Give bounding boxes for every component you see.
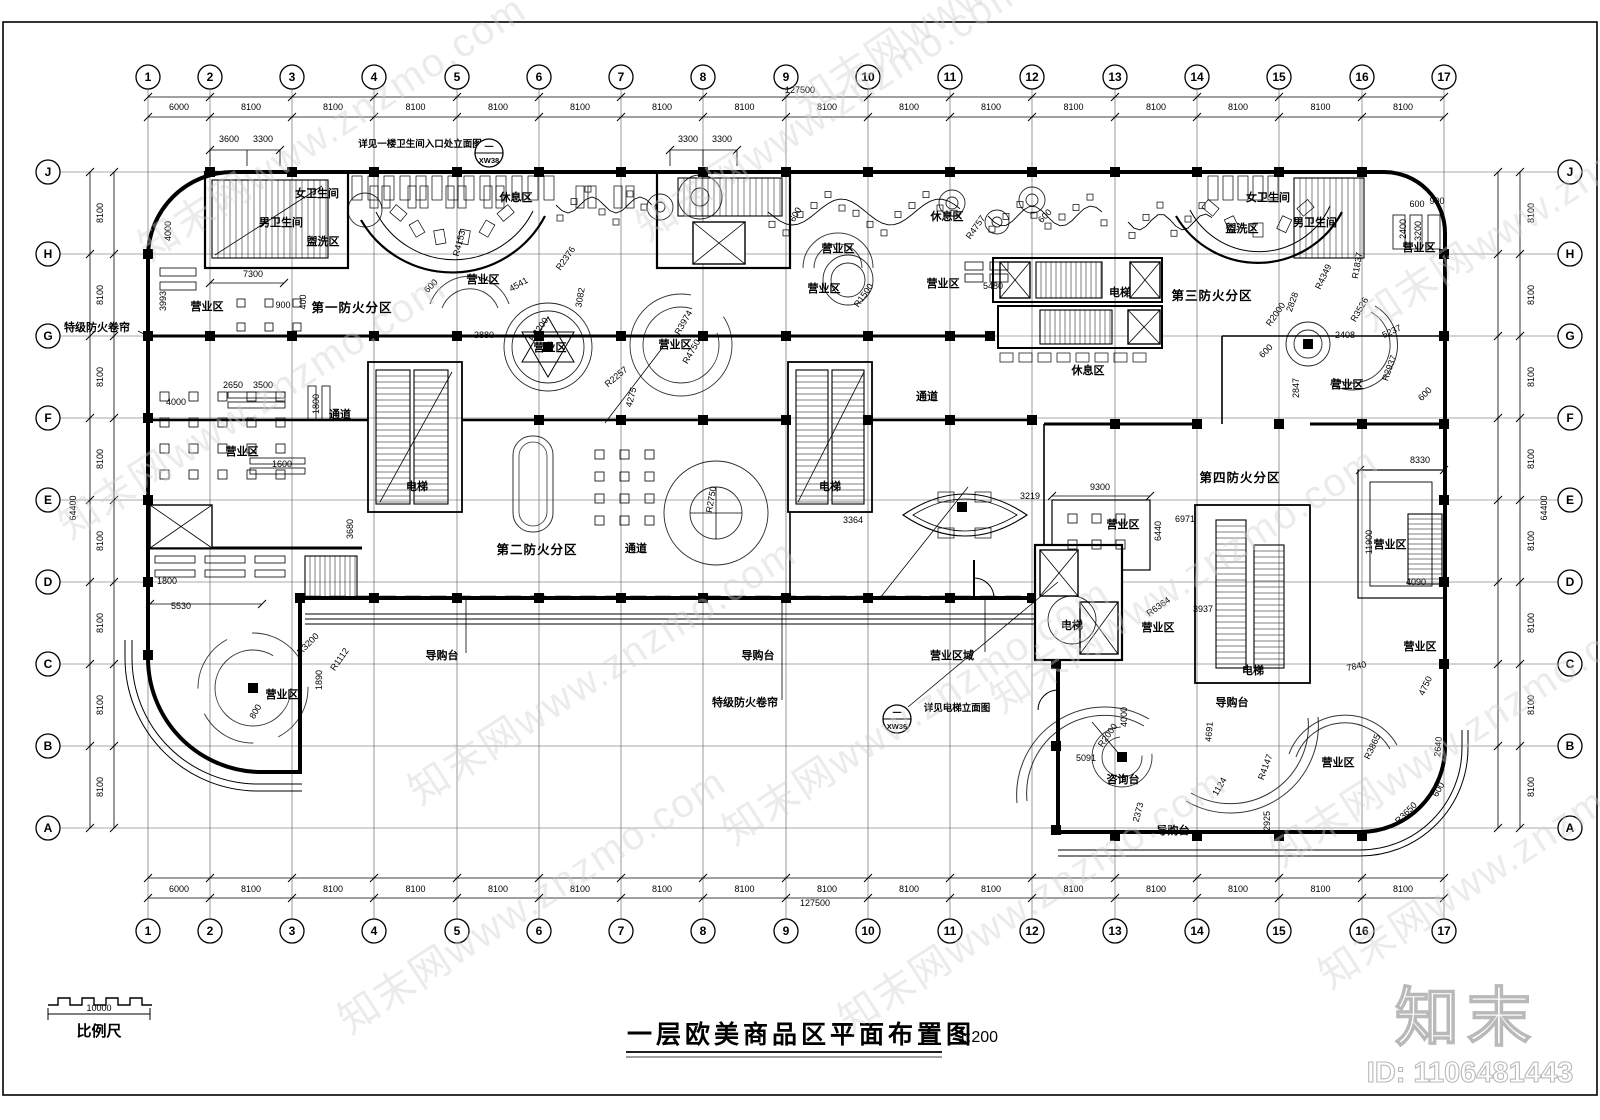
dimension-text: 8100 [1393,102,1413,112]
plan-label: 营业区 [1374,537,1407,551]
grid-bubble: 16 [1355,70,1369,84]
dimension-text: R4349 [1313,263,1333,291]
bench [1038,353,1051,362]
dimension-text: R3974 [672,309,694,337]
plan-label: 电梯 [1242,663,1264,677]
plan-label: 电梯 [819,479,841,493]
plan-label: 营业区 [1322,755,1355,769]
dimension-text: 3300 [712,134,732,144]
dimension-text: 8100 [734,102,754,112]
dimension-text: 4000 [166,397,186,407]
grid-bubble: C [44,657,53,671]
plan-label: 休息区 [499,190,533,204]
plan-label: 导购台 [1216,695,1249,709]
display-table [620,494,629,503]
column [1357,831,1367,841]
grid-bubble: E [1566,493,1574,507]
column [863,331,873,341]
column [863,593,873,603]
dimension-text: 2828 [1284,291,1300,313]
grid-bubble: B [44,739,53,753]
svg-text:一: 一 [484,142,493,152]
dimension-text: 8100 [1146,102,1166,112]
grid-bubble: G [1565,329,1574,343]
dimension-text: R1112 [328,646,351,672]
dimension-text: 8100 [1526,449,1536,469]
dimension-text: 5530 [171,601,191,611]
plan-label: 导购台 [426,648,459,662]
column [616,593,626,603]
column [143,413,153,423]
dimension-text: 3993 [158,291,168,311]
display-table [247,470,256,479]
dimension-text: 2847 [1291,378,1301,398]
grid-bubble: D [44,575,53,589]
dimension-text: 8100 [734,884,754,894]
grid-bubble: 12 [1025,70,1039,84]
grid-bubble: 1 [145,70,152,84]
branding: 知末 ID: 1106481443 [1367,982,1573,1089]
plan-label: 营业区 [1107,517,1140,531]
column [369,167,379,177]
dimension-text: 64400 [1539,495,1549,520]
column [1274,419,1284,429]
column [452,331,462,341]
dimension-text: 8100 [1526,613,1536,633]
dimension-text: 600 [1036,207,1054,225]
dimension-text: 600 [1409,199,1424,209]
display-table [645,516,654,525]
plan-label: 特级防火卷帘 [64,320,130,334]
column [534,415,544,425]
wave-seating [1128,214,1212,230]
column [945,331,955,341]
dimension-text: 5091 [1076,753,1096,763]
column [1192,419,1202,429]
grid-bubble: H [1566,247,1575,261]
plan-label: 营业区 [534,340,567,354]
dimension-text: 4000 [1119,707,1129,727]
dimension-text: 6000 [169,102,189,112]
column [616,415,626,425]
plan-label: 营业区 [467,272,500,286]
dimension-text: R2000 [1096,722,1119,749]
dimension-text: 8100 [1310,884,1330,894]
dimension-text: 3219 [1020,491,1040,501]
column [781,415,791,425]
plan-label: 电梯 [406,479,428,493]
stair [1254,545,1284,668]
dimension-text: 4750 [1417,675,1435,697]
dimension-text: 4691 [1203,721,1215,742]
dimension-text: 8100 [95,367,105,387]
dimension-text: 8100 [981,102,1001,112]
column [781,593,791,603]
column [1027,167,1037,177]
dimension-text: 400 [298,294,308,309]
grid-bubble: F [1566,411,1573,425]
stall [368,176,378,200]
drawing-title: 一层欧美商品区平面布置图 [627,1020,975,1049]
dimension-text: 3937 [1193,604,1213,614]
grid-bubble: F [44,411,51,425]
grid-bubble: 2 [207,924,214,938]
dimension-text: R4147 [1256,753,1274,781]
dimension-text: 8100 [95,695,105,715]
watermark: 知末网www.znzmo.com [629,0,1032,250]
dimension-text: 3300 [678,134,698,144]
display-table [276,470,285,479]
dimension-text: 8100 [1393,884,1413,894]
display-table [645,450,654,459]
plan-label: 导购台 [742,648,775,662]
stall [416,176,426,200]
column [1192,167,1202,177]
dimension-text: 127500 [800,898,830,908]
display-table [293,323,301,331]
plan-label: 通道 [625,541,647,555]
stair [1040,310,1112,344]
dimension-text: 3082 [573,287,586,308]
shelf [255,556,285,563]
column [1357,419,1367,429]
dimension-text: 600 [1416,385,1434,403]
shelf [205,570,245,577]
column [616,167,626,177]
dimension-text: 800 [247,702,263,720]
shelf [160,268,196,276]
watermark: 知末网www.znzmo.com [831,759,1234,1042]
display-table [595,494,604,503]
dimension-text: 1890 [314,670,324,690]
svg-text:XW38: XW38 [479,156,499,165]
dimension-text: 3364 [843,515,863,525]
plan-label: 详见一楼卫生间入口处立面图 [358,138,482,150]
dimension-text: 2400 [1398,219,1408,239]
display-table [595,516,604,525]
plan-label: 特级防火卷帘 [712,695,778,709]
column [143,650,153,660]
column [452,593,462,603]
dimension-text: 900 [275,300,290,310]
column [369,593,379,603]
grid-bubble: G [43,329,52,343]
display-table [1068,514,1077,523]
plan-label: 休息区 [930,209,964,223]
dimension-text: 600 [1257,342,1275,360]
dimension-text: 8100 [95,531,105,551]
plan-label: 休息区 [1071,363,1105,377]
column [781,331,791,341]
dimension-text: 1800 [311,394,321,414]
dimension-text: 8100 [1146,884,1166,894]
display-table [265,323,273,331]
column [1192,831,1202,841]
grid-bubble: 9 [783,924,790,938]
plan-label: 营业区 [1331,377,1364,391]
dimension-text: R4153 [451,229,468,257]
grid-bubble: 14 [1190,924,1204,938]
plan-label: 女卫生间 [1246,190,1290,204]
plan-label: 营业区 [927,276,960,290]
grid-bubble: 13 [1108,70,1122,84]
column [1439,419,1449,429]
bench [1133,353,1146,362]
grid-bubble: 7 [618,924,625,938]
plan-label: 女卫生间 [295,186,339,200]
display-table [620,516,629,525]
plan-label: 营业区 [808,281,841,295]
grid-bubble: J [45,165,52,179]
stall [1208,176,1218,200]
grid-bubble: 8 [700,924,707,938]
dimension-text: R2376 [554,245,577,272]
watermark: 知末网www.znzmo.com [401,530,804,813]
plan-label: 盥洗区 [307,234,340,248]
image-id: ID: 1106481443 [1367,1057,1573,1089]
dimension-text: 8100 [652,884,672,894]
dimension-text: 3200 [1413,221,1423,241]
column [616,331,626,341]
display-table [645,472,654,481]
grid-bubble: 15 [1272,70,1286,84]
dimension-text: 7840 [1346,659,1368,673]
column [1110,167,1120,177]
column [985,331,995,341]
shelf [160,282,196,290]
grid-bubble: 6 [536,70,543,84]
column [945,593,955,603]
grid-bubble: E [44,493,52,507]
column [698,331,708,341]
grid-bubble: 7 [618,70,625,84]
column [1027,415,1037,425]
display-table [595,450,604,459]
dimension-text: 3600 [219,134,239,144]
dimension-text: 8100 [1228,884,1248,894]
scale-bar-length: 10000 [86,1003,111,1013]
grid-bubble: 3 [289,924,296,938]
watermark: 知末网www.znzmo.com [131,0,534,270]
column [295,593,305,603]
scale-bar-label: 比例尺 [76,1022,121,1040]
dimension-text: 2408 [1335,330,1355,340]
column [1357,167,1367,177]
dimension-text: 8100 [241,884,261,894]
dimension-text: 4090 [1406,577,1426,587]
dimension-text: R2000 [1264,301,1287,328]
dimension-text: 8100 [1526,367,1536,387]
bench [1000,353,1013,362]
dimension-text: 8100 [488,102,508,112]
plan-label: 电梯 [1109,285,1131,299]
display-table [237,323,245,331]
dimension-text: 9300 [1090,482,1110,492]
dimension-text: 8100 [1063,102,1083,112]
dimension-text: 8100 [899,884,919,894]
column [534,167,544,177]
stall [432,176,442,200]
dimension-text: 8100 [570,102,590,112]
cad-sheet: 1122334455667788991010111112121313141415… [0,0,1600,1120]
shelf [965,262,983,270]
column [534,593,544,603]
stall [400,176,410,200]
column [698,415,708,425]
column [143,577,153,587]
dimension-text: 8100 [899,102,919,112]
column [1051,741,1061,751]
stall [384,176,394,200]
dimension-text: 5480 [983,281,1003,291]
grid-bubble: 8 [700,70,707,84]
grid-bubble: 9 [783,70,790,84]
grid-bubble: A [44,821,53,835]
stall [352,176,362,200]
display-table [276,444,285,453]
dimension-text: 3680 [345,519,355,539]
titleblock: 一层欧美商品区平面布置图 1:200 [626,1020,998,1057]
plan-label: 营业区 [1404,639,1437,653]
display-table [237,299,245,307]
dimension-text: R2257 [603,364,630,389]
dimension-text: 8100 [981,884,1001,894]
grid-bubble: 1 [145,924,152,938]
column [1051,825,1061,835]
plan-label: 通道 [916,389,938,403]
dimension-text: 3880 [474,330,494,340]
plan-label: 营业区 [822,241,855,255]
display-table [595,472,604,481]
fixtures-layer [138,150,1449,841]
bench [1019,353,1032,362]
display-table [189,392,198,401]
shelf [155,556,195,563]
dimension-text: 8100 [95,777,105,797]
column [945,167,955,177]
column [452,167,462,177]
dimension-text: R3865 [1362,733,1382,761]
column [1439,331,1449,341]
bench [1076,353,1089,362]
plan-label: 第二防火分区 [496,542,577,557]
plan-label: 盥洗区 [1226,221,1259,235]
dimension-text: 4275 [624,386,639,408]
column [1439,659,1449,669]
dimension-text: 8100 [95,449,105,469]
dimension-text: 8100 [405,884,425,894]
column [287,331,297,341]
dimension-text: 8100 [323,884,343,894]
grid-bubble: 10 [861,924,875,938]
stall [464,176,474,200]
dimension-text: 1600 [272,459,292,469]
stall [448,176,458,200]
plan-label: 第四防火分区 [1199,470,1280,485]
grid-bubble: 14 [1190,70,1204,84]
drawing-scale: 1:200 [958,1029,998,1046]
shelf [965,274,983,282]
display-table [265,299,273,307]
plan-label: 第三防火分区 [1171,288,1252,303]
plan-label: 男卫生间 [1293,215,1337,229]
display-table [645,494,654,503]
dimension-text: 8100 [1310,102,1330,112]
dimension-text: 7300 [243,269,263,279]
shelf [205,556,245,563]
watermark: 知末网www.znzmo.com [331,759,734,1042]
dimension-text: 8100 [95,203,105,223]
grid-bubble: 11 [944,70,957,84]
dimension-text: 8100 [95,285,105,305]
grid-bubble: 4 [371,924,378,938]
display-table [620,450,629,459]
grid-bubble: 17 [1437,70,1451,84]
grid-bubble: B [1566,739,1575,753]
dimension-text: 900 [1429,196,1444,206]
grid-bubble: 3 [289,70,296,84]
scale-bar: 10000 比例尺 [48,998,152,1040]
dimension-text: 8100 [241,102,261,112]
plan-label: 咨询台 [1107,772,1140,786]
grid-bubble: D [1566,575,1575,589]
site-logo: 知末 [1395,982,1539,1054]
column [1110,419,1120,429]
dimension-text: 8100 [1526,285,1536,305]
grid-bubble: H [44,247,53,261]
grid-bubble: 15 [1272,924,1286,938]
watermark: 知末网www.znzmo.com [1353,56,1600,339]
column [945,415,955,425]
plan-label: 营业区 [191,299,224,313]
dimension-text: 8100 [817,884,837,894]
dimension-text: R4757 [964,214,987,241]
shelf [255,570,285,577]
bench [1095,353,1108,362]
stall [1223,176,1233,200]
dimension-text: 2925 [1262,811,1272,831]
dimension-text: 1800 [157,576,177,586]
plan-label: 通道 [329,407,351,421]
bench [1057,353,1070,362]
plan-label: 男卫生间 [259,215,303,229]
dimension-text: 8100 [1228,102,1248,112]
column [1274,167,1284,177]
dimension-text: 8100 [95,613,105,633]
dimension-text: 8330 [1410,455,1430,465]
round-display [348,193,382,227]
stall [544,176,554,200]
dimension-text: 6000 [169,884,189,894]
grid-bubble: 2 [207,70,214,84]
bench [1114,353,1127,362]
stair [305,556,357,598]
display-table [218,470,227,479]
dimension-text: 6971 [1175,514,1195,524]
display-table [1092,514,1101,523]
stall [480,176,490,200]
column [863,167,873,177]
dimension-text: 8100 [1526,777,1536,797]
grid-bubble: 13 [1108,924,1122,938]
plan-label: 营业区 [266,687,299,701]
display-table [620,472,629,481]
dimension-text: 6440 [1153,521,1163,541]
dimension-text: 8100 [652,102,672,112]
dimension-text: 8100 [1526,531,1536,551]
floorplan-drawing: 1122334455667788991010111112121313141415… [0,0,1600,1120]
grid-bubble: 6 [536,924,543,938]
